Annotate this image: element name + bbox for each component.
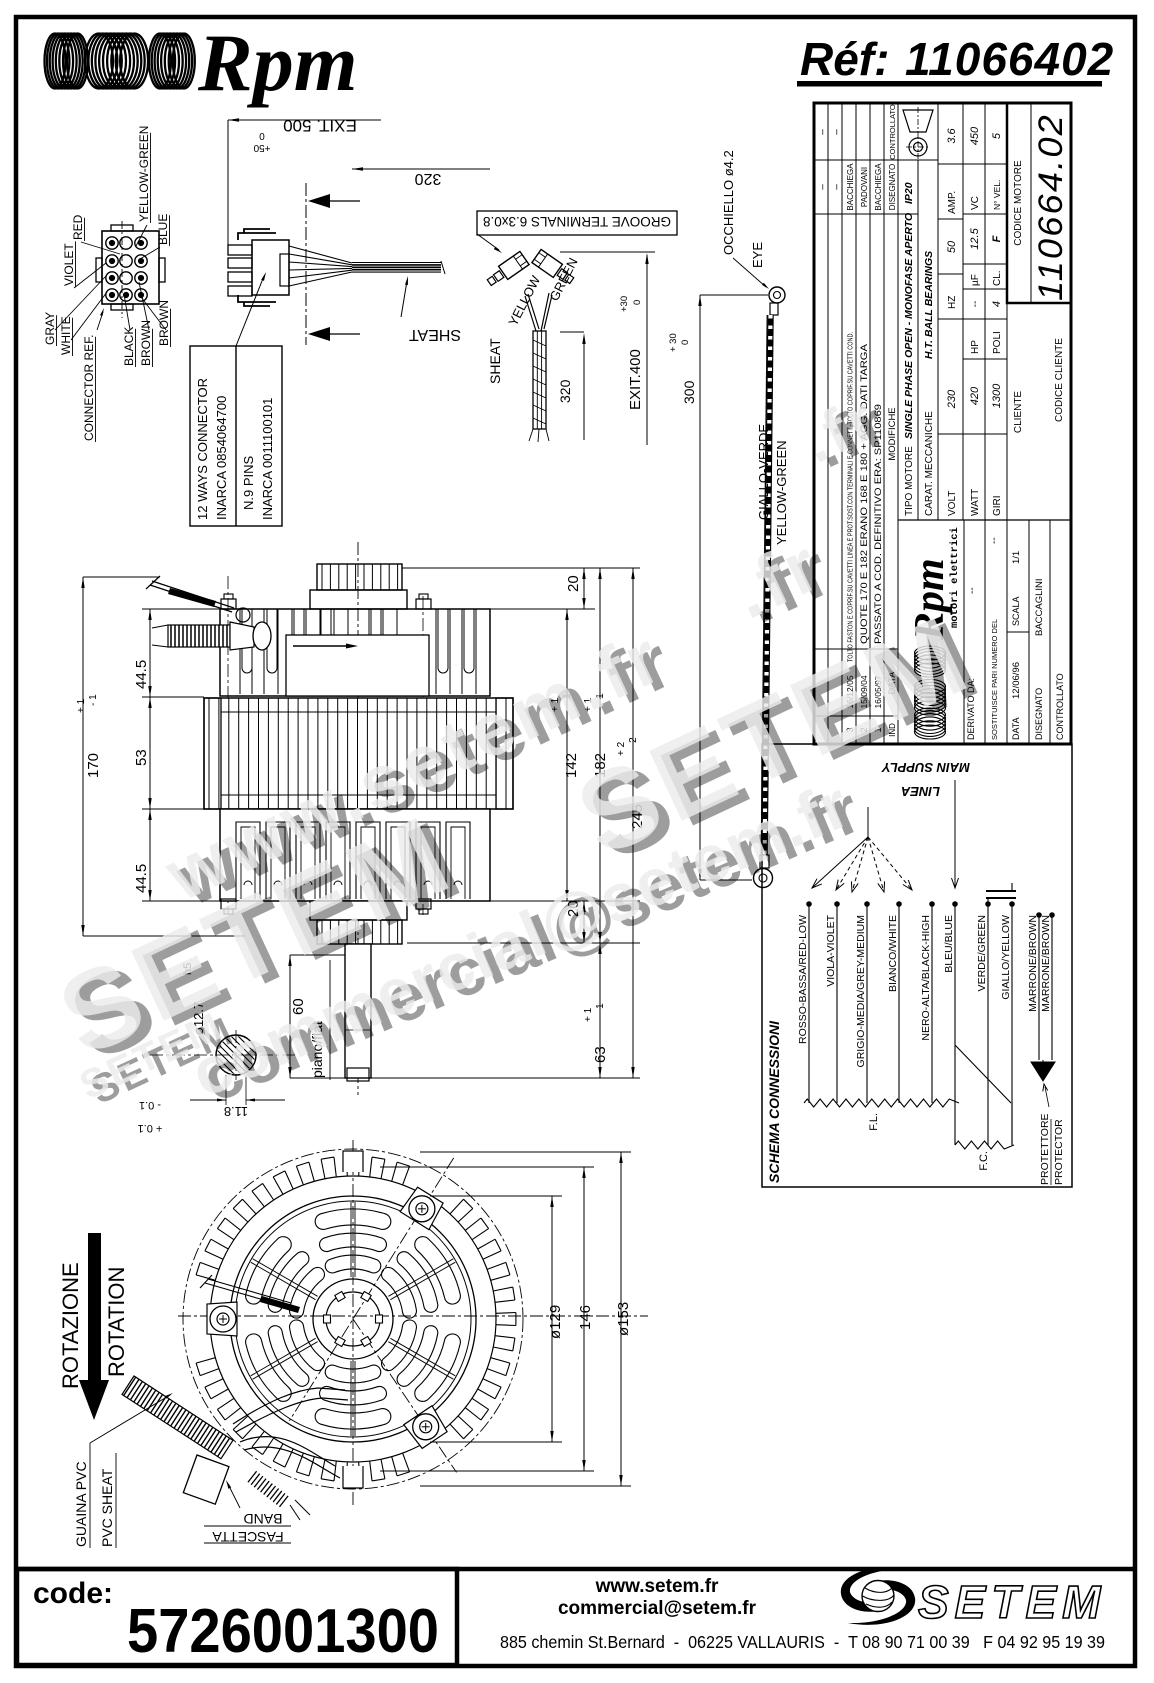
svg-text:N° VEL.: N° VEL. <box>992 180 1002 210</box>
svg-text:VIOLET: VIOLET <box>62 243 76 286</box>
svg-text:EYE: EYE <box>750 242 765 268</box>
svg-text:12 WAYS CONNECTOR: 12 WAYS CONNECTOR <box>195 378 210 520</box>
svg-text:GROOVE TERMINALS 6.3x0.8: GROOVE TERMINALS 6.3x0.8 <box>483 214 671 229</box>
svg-text:RED: RED <box>71 214 85 240</box>
svg-text:VC: VC <box>970 196 981 210</box>
svg-text:EXIT.400: EXIT.400 <box>627 349 644 410</box>
svg-text:OCCHIELLO ø4.2: OCCHIELLO ø4.2 <box>721 150 736 255</box>
svg-text:VIOLA-VIOLET: VIOLA-VIOLET <box>825 914 837 986</box>
svg-text:- 1: - 1 <box>88 694 99 706</box>
svg-text:+30: +30 <box>619 296 630 312</box>
svg-text:H.T. BALL BEARINGS: H.T. BALL BEARINGS <box>923 251 935 359</box>
svg-text:F: F <box>991 235 1003 242</box>
svg-text:SETEM: SETEM <box>918 1576 1106 1628</box>
svg-text:+50: +50 <box>253 142 270 153</box>
svg-text:SHEAT: SHEAT <box>487 338 503 384</box>
svg-text:44.5: 44.5 <box>133 864 150 893</box>
svg-text:0: 0 <box>680 340 691 345</box>
svg-text:MARRONE/BROWN: MARRONE/BROWN <box>1040 915 1052 1012</box>
svg-text:420: 420 <box>969 386 981 405</box>
svg-text:1300: 1300 <box>991 383 1003 408</box>
svg-text:GRIGIO-MEDIA/GREY-MEDIUM: GRIGIO-MEDIA/GREY-MEDIUM <box>855 915 867 1067</box>
svg-text:PADOVANI: PADOVANI <box>860 167 869 207</box>
svg-text:+ 0.1: + 0.1 <box>138 1122 163 1134</box>
svg-text:CONNECTOR REF.: CONNECTOR REF. <box>82 335 96 441</box>
svg-text:PVC SHEAT: PVC SHEAT <box>99 1468 115 1547</box>
svg-text:110664.02: 110664.02 <box>1032 113 1070 301</box>
svg-text:µF: µF <box>970 274 981 286</box>
svg-text:BACCHIEGA: BACCHIEGA <box>874 163 883 211</box>
svg-text:ø129: ø129 <box>547 1305 564 1339</box>
svg-text:--: -- <box>967 587 978 594</box>
svg-text:–: – <box>818 184 829 190</box>
svg-text:SCHEMA CONNESSIONI: SCHEMA CONNESSIONI <box>766 1020 782 1183</box>
svg-text:--: -- <box>970 301 981 308</box>
svg-text:ROTATION: ROTATION <box>104 1267 129 1377</box>
svg-text:0: 0 <box>259 130 265 141</box>
svg-text:12.5: 12.5 <box>969 227 981 249</box>
svg-text:Réf:: Réf: <box>800 33 889 85</box>
svg-text:450: 450 <box>969 126 981 145</box>
svg-text:SCALA: SCALA <box>1011 596 1021 626</box>
svg-text:--: -- <box>989 537 1000 544</box>
svg-text:63: 63 <box>592 1046 609 1063</box>
svg-text:–: – <box>818 129 829 135</box>
svg-text:+ 1: + 1 <box>583 1007 594 1022</box>
svg-text:–: – <box>832 129 843 135</box>
svg-text:F.L.: F.L. <box>868 1113 880 1131</box>
svg-text:GIALLO-VERDE: GIALLO-VERDE <box>756 424 771 520</box>
svg-text:INARCA 0011100101: INARCA 0011100101 <box>260 398 275 520</box>
svg-text:- 0.1: - 0.1 <box>139 1099 161 1111</box>
svg-text:TIPO MOTORE: TIPO MOTORE <box>904 446 915 516</box>
svg-text:320: 320 <box>557 379 573 403</box>
svg-text:WHITE: WHITE <box>59 316 73 355</box>
svg-text:ROSSO-BASSA/RED-LOW: ROSSO-BASSA/RED-LOW <box>797 915 809 1044</box>
svg-text:300: 300 <box>681 380 697 404</box>
svg-text:50: 50 <box>946 240 958 253</box>
svg-text:IP20: IP20 <box>903 182 915 204</box>
svg-text:EXIT. 500: EXIT. 500 <box>283 116 357 135</box>
svg-text:PROTECTOR: PROTECTOR <box>1053 1119 1065 1185</box>
svg-text:www.setem.fr: www.setem.fr <box>595 1576 719 1597</box>
svg-text:F.C.: F.C. <box>978 1151 990 1171</box>
svg-text:4: 4 <box>991 301 1003 307</box>
svg-text:5726001300: 5726001300 <box>127 1597 439 1666</box>
svg-text:VOLT: VOLT <box>947 491 958 516</box>
svg-text:BAND: BAND <box>244 1511 283 1527</box>
svg-text:GIALLO/YELLOW: GIALLO/YELLOW <box>1000 915 1012 1000</box>
svg-text:DISEGNATO: DISEGNATO <box>1034 688 1044 740</box>
svg-text:0: 0 <box>632 300 643 305</box>
svg-text:SOSTITUISCE PARI NUMERO DEL: SOSTITUISCE PARI NUMERO DEL <box>990 619 999 740</box>
svg-text:CARAT. MECCANICHE: CARAT. MECCANICHE <box>924 411 935 516</box>
svg-text:CONTROLLATO: CONTROLLATO <box>1055 673 1065 740</box>
svg-text:AMP.: AMP. <box>947 191 958 214</box>
svg-text:Rpm: Rpm <box>197 17 357 108</box>
svg-text:53: 53 <box>133 749 150 766</box>
svg-text:- 1: - 1 <box>595 1003 606 1015</box>
svg-text:BLUE: BLUE <box>156 214 170 245</box>
svg-text:CL.: CL. <box>992 270 1003 286</box>
svg-text:BIANCO/WHITE: BIANCO/WHITE <box>887 915 899 992</box>
svg-text:INARCA 0854064700: INARCA 0854064700 <box>214 396 229 520</box>
svg-text:SHEAT: SHEAT <box>409 326 461 343</box>
svg-text:146: 146 <box>577 1305 594 1330</box>
svg-text:44.5: 44.5 <box>133 660 150 689</box>
svg-text:885 chemin St.Bernard - 0622: 885 chemin St.Bernard - 06225 VALLAURIS … <box>500 1632 1105 1652</box>
svg-text:3.6: 3.6 <box>946 127 958 143</box>
svg-text:MARRONE/BROWN: MARRONE/BROWN <box>1027 915 1039 1012</box>
svg-text:LINEA: LINEA <box>901 784 940 799</box>
svg-text:1/1: 1/1 <box>1011 551 1022 564</box>
svg-text:TOLTO FASTON E COPRIF.SU CAVET: TOLTO FASTON E COPRIF.SU CAVETTI LINEA E… <box>848 332 855 662</box>
svg-text:+ 30: + 30 <box>668 333 679 352</box>
svg-text:HZ: HZ <box>947 296 958 309</box>
svg-text:20: 20 <box>565 575 582 592</box>
svg-text:+ 1: + 1 <box>76 698 87 713</box>
svg-text:CONTROLLATO: CONTROLLATO <box>888 104 897 160</box>
svg-text:5: 5 <box>991 132 1003 139</box>
svg-text:HP: HP <box>970 340 981 354</box>
svg-text:YELLOW-GREEN: YELLOW-GREEN <box>137 126 151 222</box>
svg-text:12/06/96: 12/06/96 <box>1011 662 1022 699</box>
svg-text:POLI: POLI <box>992 331 1003 354</box>
svg-text:GIRI: GIRI <box>992 495 1003 516</box>
svg-text:code:: code: <box>33 1577 113 1610</box>
svg-text:commercial@setem.fr: commercial@setem.fr <box>558 1598 757 1619</box>
svg-text:GRAY: GRAY <box>43 312 57 345</box>
svg-text:WATT: WATT <box>970 489 981 516</box>
svg-text:320: 320 <box>415 170 442 187</box>
svg-text:VERDE/GREEN: VERDE/GREEN <box>976 915 988 991</box>
svg-text:CODICE MOTORE: CODICE MOTORE <box>1013 160 1024 246</box>
svg-text:CODICE CLIENTE: CODICE CLIENTE <box>1054 338 1065 422</box>
svg-text:230: 230 <box>946 389 958 409</box>
svg-text:GUAINA PVC: GUAINA PVC <box>73 1461 89 1547</box>
svg-text:11066402: 11066402 <box>905 33 1114 85</box>
svg-text:BROWN: BROWN <box>139 320 153 366</box>
svg-text:CLIENTE: CLIENTE <box>1013 391 1024 434</box>
svg-text:ROTAZIONE: ROTAZIONE <box>58 1262 83 1389</box>
svg-text:–: – <box>832 184 843 190</box>
svg-text:DATA: DATA <box>1011 717 1021 740</box>
svg-text:ø153: ø153 <box>615 1302 632 1336</box>
svg-text:N.9 PINS: N.9 PINS <box>241 455 256 510</box>
svg-text:170: 170 <box>85 753 102 778</box>
svg-text:BLEU/BLUE: BLEU/BLUE <box>943 915 955 973</box>
svg-text:SINGLE PHASE OPEN - MONOFASE A: SINGLE PHASE OPEN - MONOFASE APERTO <box>903 213 915 439</box>
svg-text:MAIN SUPPLY: MAIN SUPPLY <box>881 760 970 775</box>
svg-text:BACCAGLINI: BACCAGLINI <box>1034 578 1045 636</box>
svg-text:NERO-ALTA/BLACK-HIGH: NERO-ALTA/BLACK-HIGH <box>920 915 932 1041</box>
svg-text:BACCHIEGA: BACCHIEGA <box>846 163 855 211</box>
svg-text:PROTETTORE: PROTETTORE <box>1039 1113 1051 1185</box>
svg-text:DISEGNATO: DISEGNATO <box>888 164 897 210</box>
svg-text:BROWN: BROWN <box>157 300 171 346</box>
svg-text:BLACK: BLACK <box>122 327 136 366</box>
